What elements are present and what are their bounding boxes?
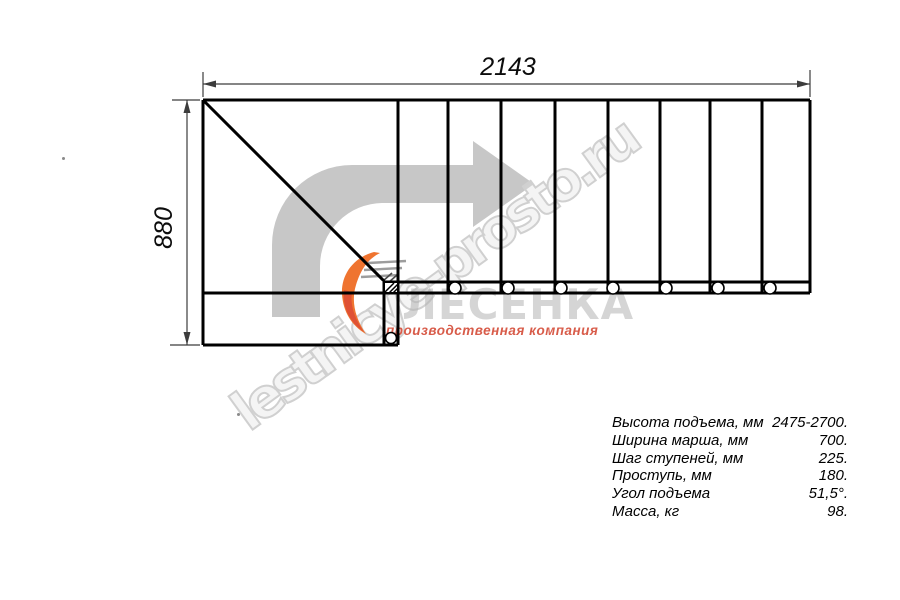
spec-label: Высота подъема, мм <box>612 414 764 432</box>
winder-diagonal <box>204 101 384 281</box>
spec-row: Угол подъема51,5°. <box>612 485 848 503</box>
spec-value: 51,5°. <box>809 485 848 503</box>
spec-label: Шаг ступеней, мм <box>612 450 743 468</box>
spec-label: Угол подъема <box>612 485 710 503</box>
spec-table: Высота подъема, мм2475-2700.Ширина марша… <box>612 414 848 521</box>
spec-row: Высота подъема, мм2475-2700. <box>612 414 848 432</box>
width-dimension-label: 2143 <box>479 53 536 81</box>
spec-label: Ширина марша, мм <box>612 432 748 450</box>
stair-outline <box>203 100 810 345</box>
tread-lines <box>398 100 762 345</box>
staircase-plan-page: lestnicye-prosto.ru ЛЕСЕНКА производстве… <box>0 0 900 600</box>
height-dimension-label: 880 <box>150 207 178 249</box>
spec-row: Шаг ступеней, мм225. <box>612 450 848 468</box>
spec-value: 2475-2700. <box>772 414 848 432</box>
spec-value: 98. <box>827 503 848 521</box>
spec-value: 700. <box>819 432 848 450</box>
spec-row: Проступь, мм180. <box>612 467 848 485</box>
spec-row: Ширина марша, мм700. <box>612 432 848 450</box>
stray-dot <box>237 413 240 416</box>
stray-dot <box>62 157 65 160</box>
hatch-detail <box>384 282 398 293</box>
spec-label: Масса, кг <box>612 503 679 521</box>
spec-label: Проступь, мм <box>612 467 712 485</box>
spec-value: 180. <box>819 467 848 485</box>
spec-value: 225. <box>819 450 848 468</box>
stringer-bolts <box>386 282 777 344</box>
spec-row: Масса, кг98. <box>612 503 848 521</box>
